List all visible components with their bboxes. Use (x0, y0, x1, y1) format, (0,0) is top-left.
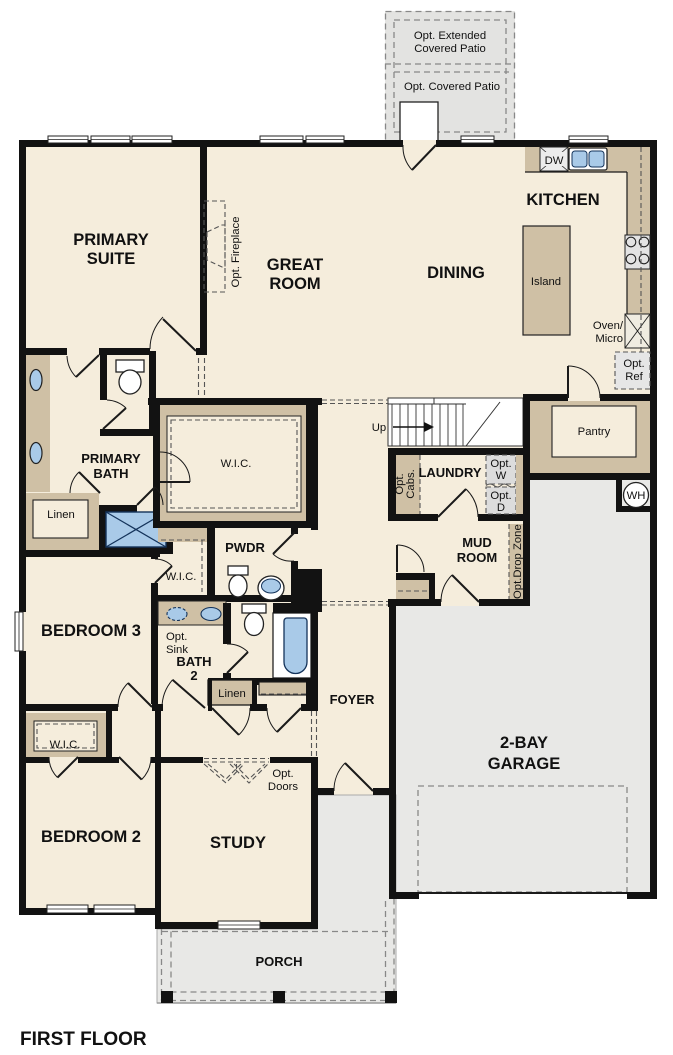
svg-text:Linen: Linen (218, 688, 246, 700)
svg-text:SUITE: SUITE (87, 250, 136, 268)
svg-text:Opt. Fireplace: Opt. Fireplace (230, 217, 242, 288)
svg-text:Opt.Drop Zone: Opt.Drop Zone (512, 524, 524, 599)
svg-text:LAUNDRY: LAUNDRY (418, 465, 481, 480)
svg-text:ROOM: ROOM (457, 550, 497, 565)
svg-text:Opt.: Opt. (166, 631, 187, 643)
svg-text:Opt. Extended: Opt. Extended (414, 30, 486, 42)
svg-text:PORCH: PORCH (256, 954, 303, 969)
svg-text:DINING: DINING (427, 264, 485, 282)
svg-text:Covered Patio: Covered Patio (414, 43, 486, 55)
svg-text:Opt.: Opt. (272, 768, 293, 780)
svg-text:Oven/: Oven/ (593, 320, 624, 332)
svg-text:PRIMARY: PRIMARY (81, 451, 141, 466)
svg-text:W.I.C.: W.I.C. (166, 571, 197, 583)
svg-text:Up: Up (372, 422, 386, 434)
svg-text:2: 2 (190, 668, 197, 683)
svg-text:Opt. Covered Patio: Opt. Covered Patio (404, 81, 500, 93)
svg-text:ROOM: ROOM (269, 275, 320, 293)
svg-text:D: D (497, 502, 505, 514)
svg-text:DW: DW (545, 155, 564, 167)
svg-text:WH: WH (627, 490, 646, 502)
svg-text:Cabs.: Cabs. (405, 469, 417, 499)
svg-text:W.I.C.: W.I.C. (221, 458, 252, 470)
svg-text:W.I.C.: W.I.C. (50, 739, 81, 751)
svg-text:Ref: Ref (625, 371, 643, 383)
svg-text:MUD: MUD (462, 535, 492, 550)
svg-text:GREAT: GREAT (267, 256, 324, 274)
svg-text:KITCHEN: KITCHEN (526, 191, 599, 209)
svg-text:STUDY: STUDY (210, 834, 266, 852)
svg-text:Island: Island (531, 276, 561, 288)
svg-text:GARAGE: GARAGE (488, 755, 560, 773)
svg-text:BEDROOM 2: BEDROOM 2 (41, 828, 141, 846)
svg-text:W: W (496, 470, 507, 482)
svg-text:Micro: Micro (595, 333, 623, 345)
svg-text:FOYER: FOYER (330, 692, 375, 707)
svg-text:BATH: BATH (176, 654, 211, 669)
svg-text:2-BAY: 2-BAY (500, 734, 548, 752)
svg-text:Opt.: Opt. (623, 358, 644, 370)
svg-text:BATH: BATH (93, 466, 128, 481)
svg-text:Doors: Doors (268, 781, 298, 793)
svg-text:BEDROOM 3: BEDROOM 3 (41, 622, 141, 640)
svg-text:PWDR: PWDR (225, 540, 265, 555)
svg-text:Pantry: Pantry (578, 426, 611, 438)
svg-text:PRIMARY: PRIMARY (73, 231, 148, 249)
svg-text:Opt.: Opt. (490, 458, 511, 470)
svg-text:FIRST FLOOR: FIRST FLOOR (20, 1029, 147, 1050)
svg-text:Linen: Linen (47, 509, 75, 521)
svg-text:Opt.: Opt. (490, 490, 511, 502)
